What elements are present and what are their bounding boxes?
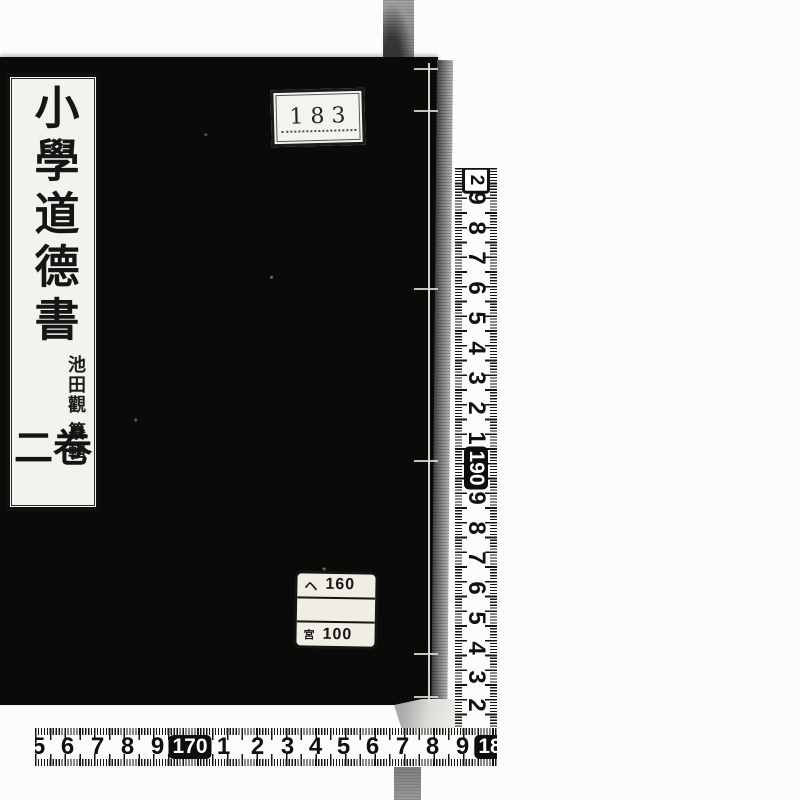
accession-label-inner-border (275, 93, 360, 142)
ruler-number: 4 (462, 641, 490, 654)
binding-stitch (414, 288, 438, 290)
ruler-number: 8 (462, 521, 490, 534)
binding-stitch (414, 696, 438, 698)
ruler-number: 3 (462, 670, 490, 683)
title-label: 小學道德書 池田觀纂輯 卷二 (6, 73, 100, 511)
horizontal-measuring-tape: 5678917012345678918 (35, 728, 497, 766)
ruler-number: 3 (462, 371, 490, 384)
ruler-number: 6 (366, 733, 378, 761)
ruler-number: 2 (462, 401, 490, 414)
binding-stitch (414, 653, 438, 655)
ruler-number: 1 (462, 431, 490, 444)
ruler-number: 6 (462, 581, 490, 594)
call-number-kanji: 宮 (303, 626, 314, 642)
call-number-row-3: 宮 100 (296, 621, 374, 647)
call-number-value: 100 (322, 625, 352, 644)
ruler-number: 18 (474, 735, 497, 759)
volume-label: 卷二 (11, 427, 89, 507)
binding-stitch (414, 68, 438, 70)
ruler-number: 9 (462, 191, 490, 204)
accession-label: 183 (270, 88, 365, 147)
ruler-number: 7 (91, 733, 103, 761)
binding-thread (428, 63, 430, 703)
ruler-number: 7 (396, 733, 408, 761)
ruler-number: 5 (462, 611, 490, 624)
ruler-number: 6 (462, 281, 490, 294)
ruler-number: 190 (464, 446, 488, 489)
ruler-number: 170 (168, 735, 211, 759)
hanging-strap-top (383, 0, 414, 58)
binding-stitch (414, 110, 438, 112)
ruler-number: 5 (462, 311, 490, 324)
ruler-number: 4 (309, 733, 321, 761)
ruler-number: 2 (462, 698, 490, 711)
binding-stitch (414, 460, 438, 462)
ruler-number: 9 (151, 733, 163, 761)
book-title: 小學道德書 (31, 84, 76, 349)
ruler-number: 5 (35, 733, 44, 761)
hanging-strap-bottom (394, 767, 421, 800)
ruler-number: 2 (251, 733, 263, 761)
ruler-number: 6 (61, 733, 73, 761)
ruler-number: 7 (462, 551, 490, 564)
compiler-name: 池田觀 (65, 355, 86, 415)
call-number-kana: ヘ (304, 575, 317, 594)
ruler-number: 2 (462, 168, 490, 193)
ruler-number: 4 (462, 341, 490, 354)
ruler-number: 5 (337, 733, 349, 761)
call-number-value: 160 (325, 576, 355, 595)
ruler-number: 7 (462, 251, 490, 264)
call-number-row-1: ヘ 160 (297, 573, 375, 597)
ruler-number: 8 (121, 733, 133, 761)
call-number-row-2 (297, 596, 375, 622)
ruler-number: 1 (217, 733, 229, 761)
ruler-number: 9 (462, 491, 490, 504)
vertical-measuring-tape: 298765432119098765432 (455, 168, 497, 738)
ruler-number: 3 (281, 733, 293, 761)
ruler-number: 8 (426, 733, 438, 761)
ruler-number: 9 (456, 733, 468, 761)
call-number-label: ヘ 160 宮 100 (293, 570, 378, 649)
ruler-number: 8 (462, 221, 490, 234)
